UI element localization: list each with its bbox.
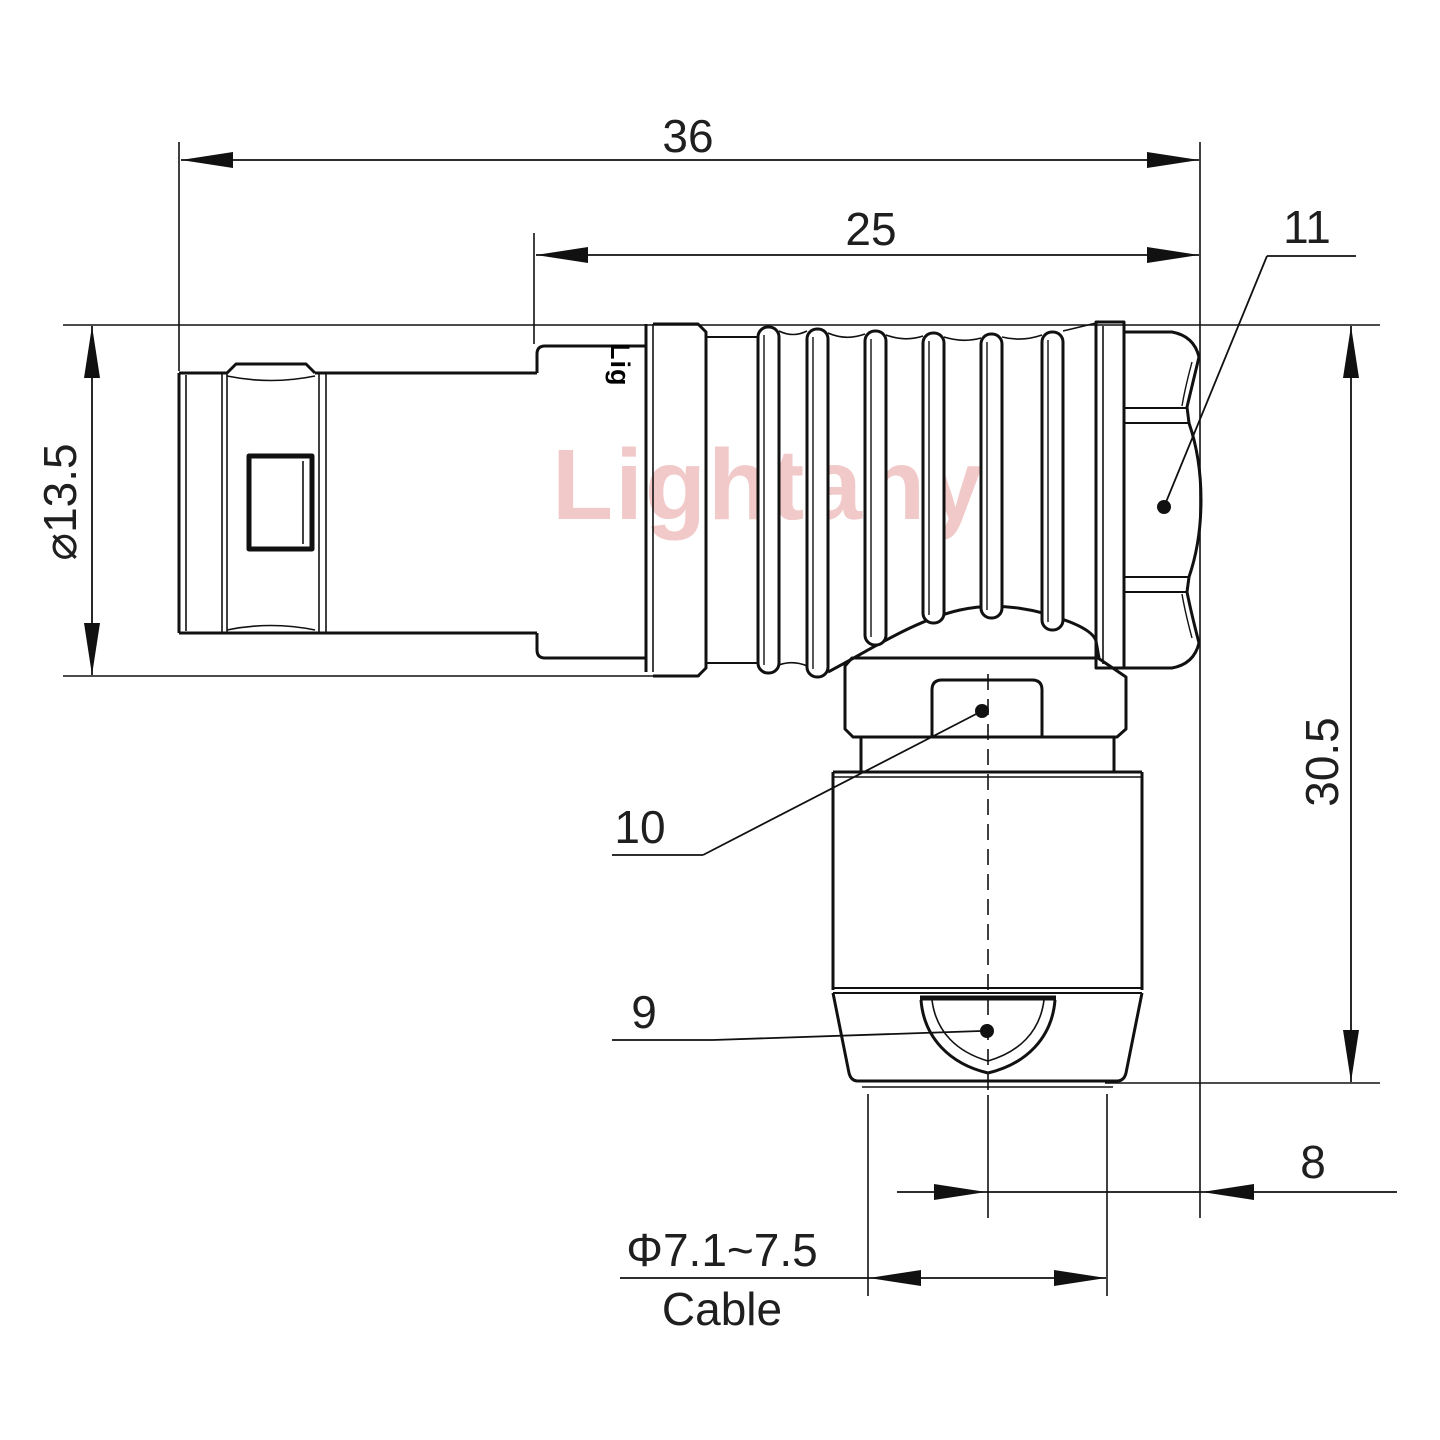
- arrow-36-right: [1147, 152, 1199, 168]
- key-bump: [227, 364, 315, 373]
- arrow-13-5-top: [84, 326, 100, 378]
- dim-label-axis-offset: 8: [1300, 1139, 1326, 1185]
- arrow-36-left: [181, 152, 233, 168]
- rib-3: [865, 331, 886, 645]
- rib-4: [923, 333, 944, 623]
- end-flange: [1096, 322, 1124, 668]
- ribs: [758, 327, 1063, 677]
- arrow-8-left: [934, 1184, 986, 1200]
- drawing-canvas: Lightany: [0, 0, 1440, 1440]
- arrow-8-right: [1202, 1184, 1254, 1200]
- rib-5: [981, 334, 1002, 618]
- rib-2: [807, 329, 828, 677]
- collar-ring: [653, 324, 706, 676]
- back-nut: [845, 658, 1126, 737]
- sleeve-top-arc: [227, 376, 315, 381]
- arrow-13-5-bottom: [84, 623, 100, 675]
- arrow-30-5-top: [1343, 326, 1359, 378]
- arrow-30-5-bottom: [1343, 1030, 1359, 1082]
- housing-ring: [537, 324, 653, 672]
- dim-label-cable-range: Φ7.1~7.5: [626, 1227, 817, 1273]
- extension-lines: [63, 142, 1380, 1296]
- dim-label-cable-word: Cable: [662, 1286, 782, 1332]
- dim-label-overall-height: 30.5: [1299, 717, 1345, 807]
- leader-9: [612, 1024, 994, 1040]
- groove: [706, 337, 758, 663]
- dim-label-front-diameter: ⌀13.5: [37, 443, 83, 560]
- arrow-25-right: [1147, 247, 1199, 263]
- arrow-25-left: [536, 247, 588, 263]
- sleeve-bottom-arc: [227, 626, 315, 631]
- hex-end-cap: [1124, 332, 1201, 668]
- body-logo-text: Lig: [606, 343, 633, 387]
- rib-1: [758, 327, 779, 673]
- front-plug: [179, 364, 537, 633]
- dim-label-overall-length: 36: [662, 113, 713, 159]
- arrow-cable-left: [869, 1270, 921, 1286]
- dim-label-body-length: 25: [845, 206, 896, 252]
- arrowheads: [84, 152, 1359, 1286]
- part-label-end-cap: 11: [1283, 204, 1331, 250]
- ribbed-section: [758, 323, 1099, 677]
- hex-facet-lines: [1124, 408, 1189, 592]
- dimension-lines: [92, 160, 1397, 1278]
- part-label-back-nut: 10: [614, 804, 665, 850]
- arrow-cable-right: [1054, 1270, 1106, 1286]
- part-label-cable-nut: 9: [631, 989, 657, 1035]
- rib-6: [1042, 332, 1063, 630]
